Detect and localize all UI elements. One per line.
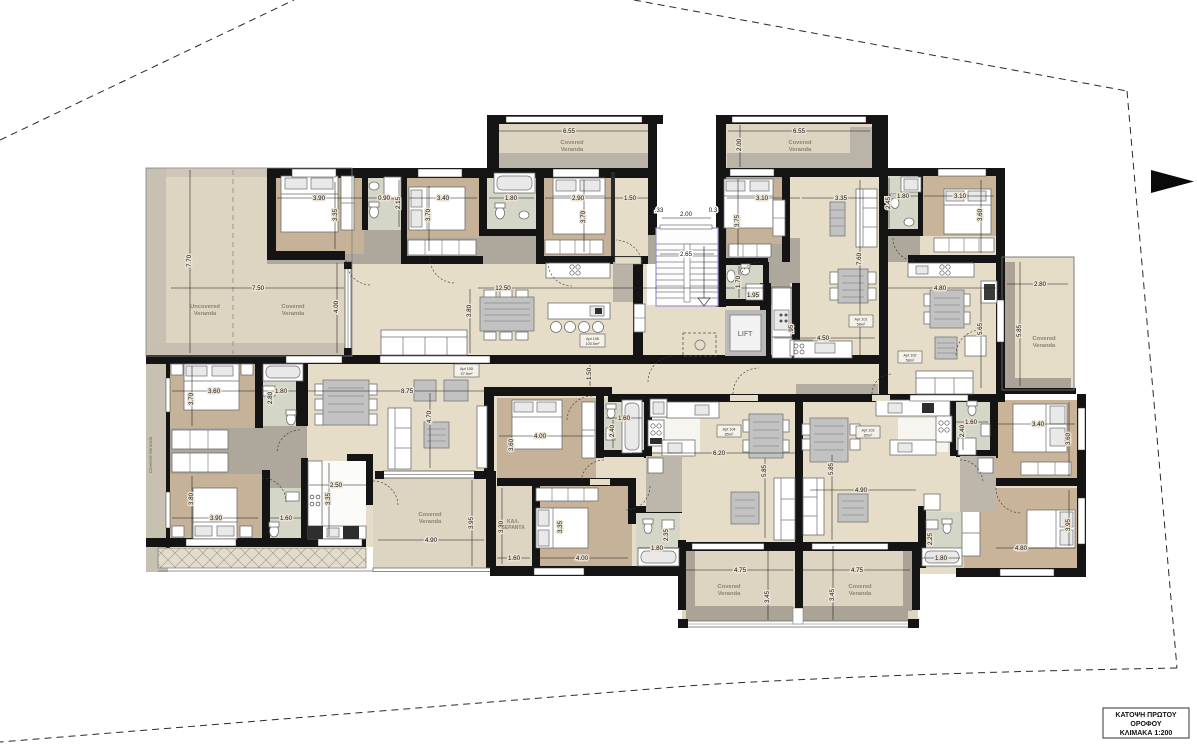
svg-text:1.60: 1.60 — [508, 555, 521, 562]
svg-text:4.80: 4.80 — [934, 285, 947, 292]
svg-text:Apt 102: Apt 102 — [903, 354, 916, 358]
svg-text:Apt 101: Apt 101 — [854, 318, 867, 322]
svg-text:7.50: 7.50 — [252, 285, 265, 292]
svg-text:ΒΕΡΑΝΤΑ: ΒΕΡΑΝΤΑ — [501, 525, 525, 531]
svg-text:Covered: Covered — [281, 304, 305, 310]
svg-text:3.60: 3.60 — [208, 388, 221, 395]
svg-text:Veranda: Veranda — [419, 519, 442, 525]
svg-text:2.00: 2.00 — [736, 138, 743, 151]
svg-text:2.65: 2.65 — [680, 251, 693, 258]
svg-text:3.40: 3.40 — [437, 195, 450, 202]
svg-text:85m²: 85m² — [725, 433, 734, 437]
svg-text:3.95: 3.95 — [468, 516, 475, 529]
svg-text:1.80: 1.80 — [935, 555, 948, 562]
svg-text:3.80: 3.80 — [466, 304, 473, 317]
svg-text:3.90: 3.90 — [313, 195, 326, 202]
svg-text:1.60: 1.60 — [618, 415, 631, 422]
svg-text:ΚΛΙΜΑΚΑ 1:200: ΚΛΙΜΑΚΑ 1:200 — [1120, 730, 1173, 737]
svg-text:1.80: 1.80 — [651, 545, 664, 552]
svg-text:Apt 105: Apt 105 — [460, 367, 473, 371]
svg-text:2.90: 2.90 — [572, 195, 585, 202]
svg-text:LIFT: LIFT — [738, 331, 753, 338]
svg-text:ΟΡΟΦΟΥ: ΟΡΟΦΟΥ — [1130, 721, 1162, 728]
svg-text:2.45: 2.45 — [885, 196, 892, 209]
svg-text:4.50: 4.50 — [817, 335, 830, 342]
svg-text:7.60: 7.60 — [856, 252, 863, 265]
svg-text:Veranda: Veranda — [789, 147, 812, 153]
svg-text:Apt 103: Apt 103 — [861, 429, 874, 433]
svg-text:3.70: 3.70 — [188, 392, 195, 405]
svg-text:1.50: 1.50 — [586, 367, 593, 380]
svg-text:1.70: 1.70 — [735, 275, 742, 288]
svg-text:Covered: Covered — [848, 584, 872, 590]
svg-text:4.80: 4.80 — [1015, 545, 1028, 552]
svg-text:3.40: 3.40 — [1032, 421, 1045, 428]
svg-text:4.70: 4.70 — [426, 410, 433, 423]
svg-text:58m²: 58m² — [857, 323, 866, 327]
svg-text:3.70: 3.70 — [425, 208, 432, 221]
svg-text:3.35: 3.35 — [325, 492, 332, 505]
svg-text:2.15: 2.15 — [395, 196, 402, 209]
svg-text:5.85: 5.85 — [761, 464, 768, 477]
svg-text:2.35: 2.35 — [663, 528, 670, 541]
svg-text:1.60: 1.60 — [280, 515, 293, 522]
svg-text:1.80: 1.80 — [897, 193, 910, 200]
svg-text:.95: .95 — [788, 324, 795, 333]
svg-text:3.75: 3.75 — [734, 214, 741, 227]
svg-text:1.80: 1.80 — [505, 195, 518, 202]
svg-text:1.60: 1.60 — [965, 419, 978, 426]
svg-text:0.3: 0.3 — [709, 207, 718, 214]
svg-text:Covered: Covered — [418, 512, 442, 518]
svg-text:Veranda: Veranda — [718, 591, 741, 597]
svg-text:3.35: 3.35 — [557, 520, 564, 533]
svg-text:3.35: 3.35 — [835, 195, 848, 202]
svg-text:2.00: 2.00 — [680, 211, 693, 218]
svg-text:3.10: 3.10 — [756, 195, 769, 202]
svg-text:Covered Veranda: Covered Veranda — [148, 436, 153, 473]
svg-text:5.85: 5.85 — [828, 462, 835, 475]
svg-text:5.65: 5.65 — [977, 322, 984, 335]
svg-text:0.90: 0.90 — [378, 195, 391, 202]
svg-text:Veranda: Veranda — [282, 311, 305, 317]
svg-text:4.00: 4.00 — [534, 433, 547, 440]
svg-text:ΚΑΤΟΨΗ ΠΡΩΤΟΥ: ΚΑΤΟΨΗ ΠΡΩΤΟΥ — [1115, 712, 1177, 719]
svg-text:4.90: 4.90 — [425, 537, 438, 544]
svg-text:Covered: Covered — [788, 140, 812, 146]
svg-text:1.95: 1.95 — [747, 292, 760, 299]
svg-text:Veranda: Veranda — [194, 311, 217, 317]
svg-text:Veranda: Veranda — [849, 591, 872, 597]
svg-text:6.55: 6.55 — [563, 128, 576, 135]
svg-text:97.5m²: 97.5m² — [461, 372, 474, 376]
svg-text:3.70: 3.70 — [580, 210, 587, 223]
svg-text:2.40: 2.40 — [959, 424, 966, 437]
svg-text:3.60: 3.60 — [1065, 432, 1072, 445]
svg-text:4.75: 4.75 — [851, 567, 864, 574]
svg-text:Covered: Covered — [717, 584, 741, 590]
svg-text:100.5m²: 100.5m² — [586, 342, 601, 346]
svg-text:Uncovered: Uncovered — [190, 304, 220, 310]
svg-text:58m²: 58m² — [906, 359, 915, 363]
svg-text:3.60: 3.60 — [977, 208, 984, 221]
svg-text:1.80: 1.80 — [275, 388, 288, 395]
svg-text:4.75: 4.75 — [734, 567, 747, 574]
svg-text:3.35: 3.35 — [332, 208, 339, 221]
svg-text:8.75: 8.75 — [401, 388, 414, 395]
svg-text:3.45: 3.45 — [764, 590, 771, 603]
svg-text:6.55: 6.55 — [793, 128, 806, 135]
svg-text:6.20: 6.20 — [713, 450, 726, 457]
svg-text:2.25: 2.25 — [927, 532, 934, 545]
svg-text:3.90: 3.90 — [210, 515, 223, 522]
svg-text:Apt 104: Apt 104 — [722, 428, 735, 432]
svg-text:4.00: 4.00 — [333, 300, 340, 313]
svg-text:Apt 106: Apt 106 — [586, 337, 599, 341]
svg-text:2.40: 2.40 — [609, 424, 616, 437]
svg-text:85m²: 85m² — [864, 434, 873, 438]
svg-text:3.45: 3.45 — [829, 588, 836, 601]
svg-text:3.80: 3.80 — [188, 492, 195, 505]
svg-text:Veranda: Veranda — [561, 147, 584, 153]
svg-text:Veranda: Veranda — [1033, 343, 1056, 349]
svg-text:2.80: 2.80 — [267, 391, 274, 404]
svg-text:2.80: 2.80 — [1034, 281, 1047, 288]
svg-text:3.95: 3.95 — [1065, 518, 1072, 531]
svg-text:12.50: 12.50 — [495, 285, 511, 292]
svg-text:5.85: 5.85 — [1016, 324, 1023, 337]
svg-text:4.00: 4.00 — [576, 555, 589, 562]
svg-text:Covered: Covered — [1032, 336, 1056, 342]
svg-text:Covered: Covered — [560, 140, 584, 146]
svg-text:1.50: 1.50 — [624, 195, 637, 202]
svg-text:4.90: 4.90 — [855, 487, 868, 494]
svg-text:7.70: 7.70 — [186, 254, 193, 267]
svg-text:.33: .33 — [655, 207, 664, 214]
svg-text:2.50: 2.50 — [330, 482, 343, 489]
svg-text:3.10: 3.10 — [954, 193, 967, 200]
svg-text:3.60: 3.60 — [508, 438, 515, 451]
